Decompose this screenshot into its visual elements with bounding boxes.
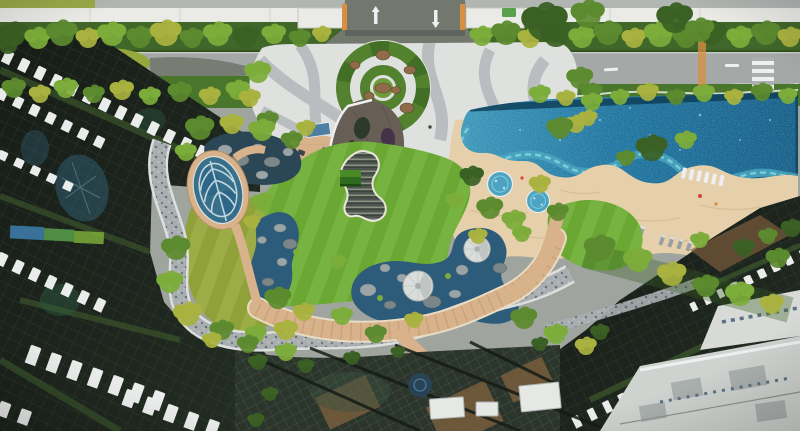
aerial-photo: [0, 0, 800, 431]
photo-vignette: [0, 0, 800, 431]
aerial-photo-canvas: [0, 0, 800, 431]
